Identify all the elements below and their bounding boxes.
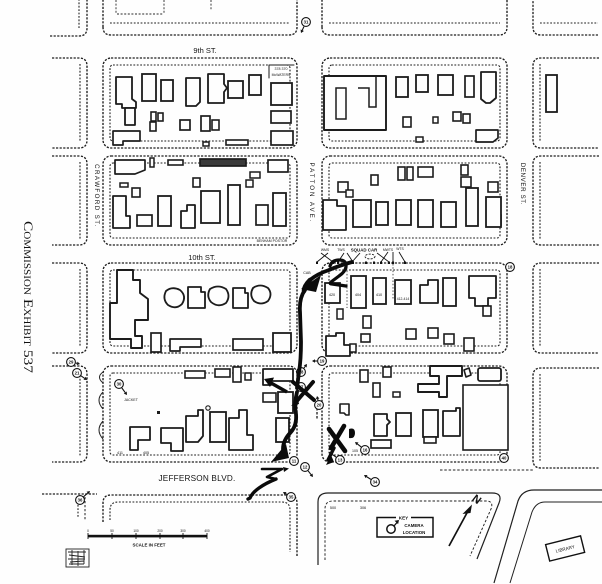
- svg-text:10th ST.: 10th ST.: [188, 253, 216, 262]
- svg-text:12: 12: [303, 465, 308, 470]
- svg-text:19: 19: [320, 359, 325, 364]
- svg-text:11: 11: [292, 459, 297, 464]
- svg-text:TWS: TWS: [337, 248, 345, 252]
- svg-text:18: 18: [508, 265, 513, 270]
- svg-text:CAB: CAB: [303, 271, 311, 275]
- svg-text:16: 16: [363, 448, 368, 453]
- svg-text:405: 405: [143, 451, 149, 455]
- svg-text:378 370: 378 370: [275, 67, 288, 71]
- svg-text:34: 34: [373, 480, 378, 485]
- svg-text:29: 29: [69, 360, 74, 365]
- svg-text:SQUAD CAR: SQUAD CAR: [351, 248, 378, 253]
- svg-text:400: 400: [204, 529, 210, 533]
- svg-text:200: 200: [157, 529, 163, 533]
- svg-text:21: 21: [75, 371, 80, 376]
- svg-text:CRAWFORD ST.: CRAWFORD ST.: [93, 164, 100, 228]
- svg-text:BENHAM POSTOR: BENHAM POSTOR: [257, 239, 288, 243]
- svg-text:306: 306: [360, 506, 366, 510]
- svg-text:420: 420: [329, 293, 335, 297]
- svg-text:MWTS: MWTS: [383, 248, 394, 252]
- svg-text:DENVER ST.: DENVER ST.: [519, 163, 526, 205]
- svg-text:JEFFERSON BLVD.: JEFFERSON BLVD.: [158, 474, 235, 483]
- svg-text:9th ST.: 9th ST.: [193, 46, 216, 55]
- svg-text:WMS: WMS: [321, 248, 330, 252]
- svg-text:105: 105: [352, 449, 358, 453]
- svg-text:CAMERA: CAMERA: [404, 523, 424, 528]
- svg-text:300: 300: [180, 529, 186, 533]
- svg-text:JACKET: JACKET: [124, 398, 139, 402]
- svg-text:411: 411: [117, 451, 123, 455]
- svg-text:31: 31: [304, 20, 309, 25]
- svg-text:50: 50: [110, 529, 114, 533]
- svg-text:36: 36: [78, 498, 83, 503]
- svg-text:412-414: 412-414: [397, 297, 410, 301]
- svg-text:100: 100: [133, 529, 139, 533]
- svg-text:McWATERS: McWATERS: [272, 73, 291, 77]
- svg-text:13: 13: [338, 458, 343, 463]
- svg-text:0: 0: [87, 529, 89, 533]
- svg-text:Commission Exhibit 537: Commission Exhibit 537: [21, 221, 35, 373]
- svg-text:20: 20: [317, 403, 322, 408]
- svg-text:WTS: WTS: [396, 247, 404, 251]
- svg-text:35: 35: [289, 495, 294, 500]
- svg-text:PATTON AVE.: PATTON AVE.: [308, 162, 315, 223]
- svg-text:KEY: KEY: [399, 515, 408, 520]
- svg-text:SCALE IN FEET: SCALE IN FEET: [133, 543, 166, 548]
- svg-text:LOCATION: LOCATION: [403, 530, 426, 535]
- svg-text:500: 500: [330, 506, 336, 510]
- svg-text:30: 30: [117, 382, 122, 387]
- svg-text:404: 404: [355, 293, 361, 297]
- svg-text:410: 410: [376, 293, 382, 297]
- svg-text:40: 40: [502, 456, 507, 461]
